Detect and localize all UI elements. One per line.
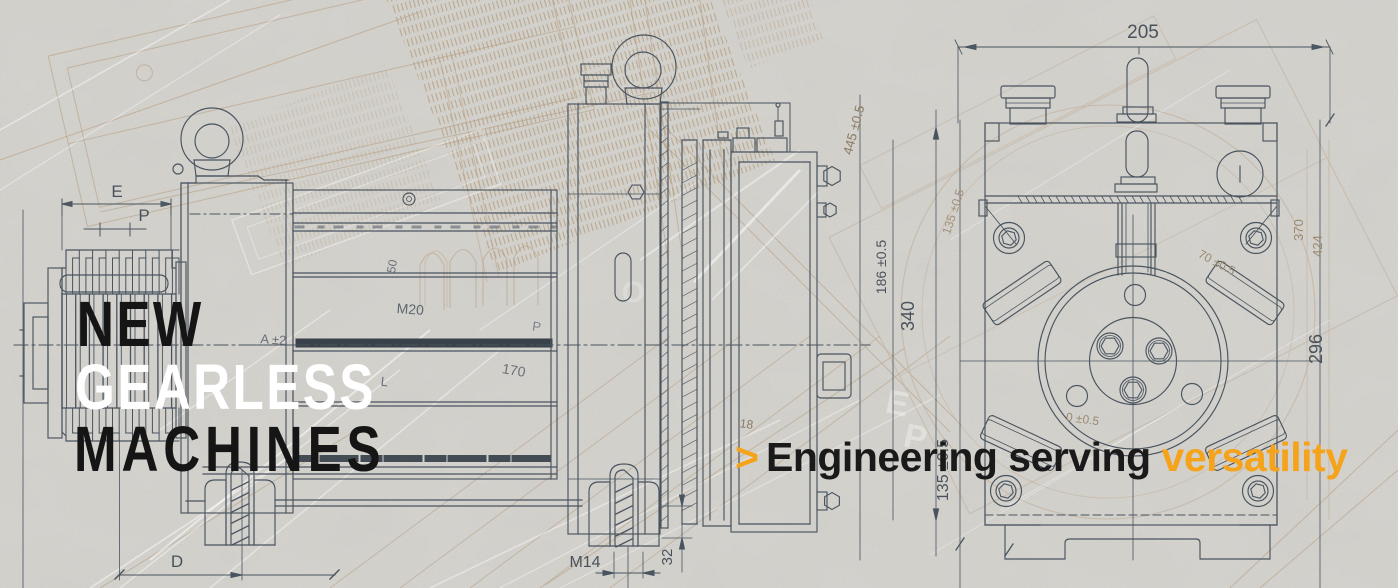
svg-text:A ±2: A ±2 bbox=[260, 331, 287, 348]
svg-text:296: 296 bbox=[1306, 334, 1326, 364]
svg-text:370: 370 bbox=[1291, 219, 1306, 241]
svg-text:186 ±0.5: 186 ±0.5 bbox=[873, 240, 889, 295]
svg-text:M20: M20 bbox=[396, 300, 424, 318]
svg-text:50: 50 bbox=[384, 258, 400, 274]
svg-text:32: 32 bbox=[659, 549, 676, 566]
svg-text:M14: M14 bbox=[569, 554, 600, 571]
svg-text:18: 18 bbox=[739, 416, 754, 432]
svg-text:205: 205 bbox=[1127, 22, 1159, 43]
svg-text:340: 340 bbox=[898, 301, 918, 331]
svg-text:E: E bbox=[111, 182, 122, 201]
svg-text:D: D bbox=[171, 552, 183, 571]
svg-text:P: P bbox=[138, 206, 149, 225]
svg-text:424: 424 bbox=[1310, 235, 1325, 257]
svg-text:L: L bbox=[380, 374, 389, 390]
